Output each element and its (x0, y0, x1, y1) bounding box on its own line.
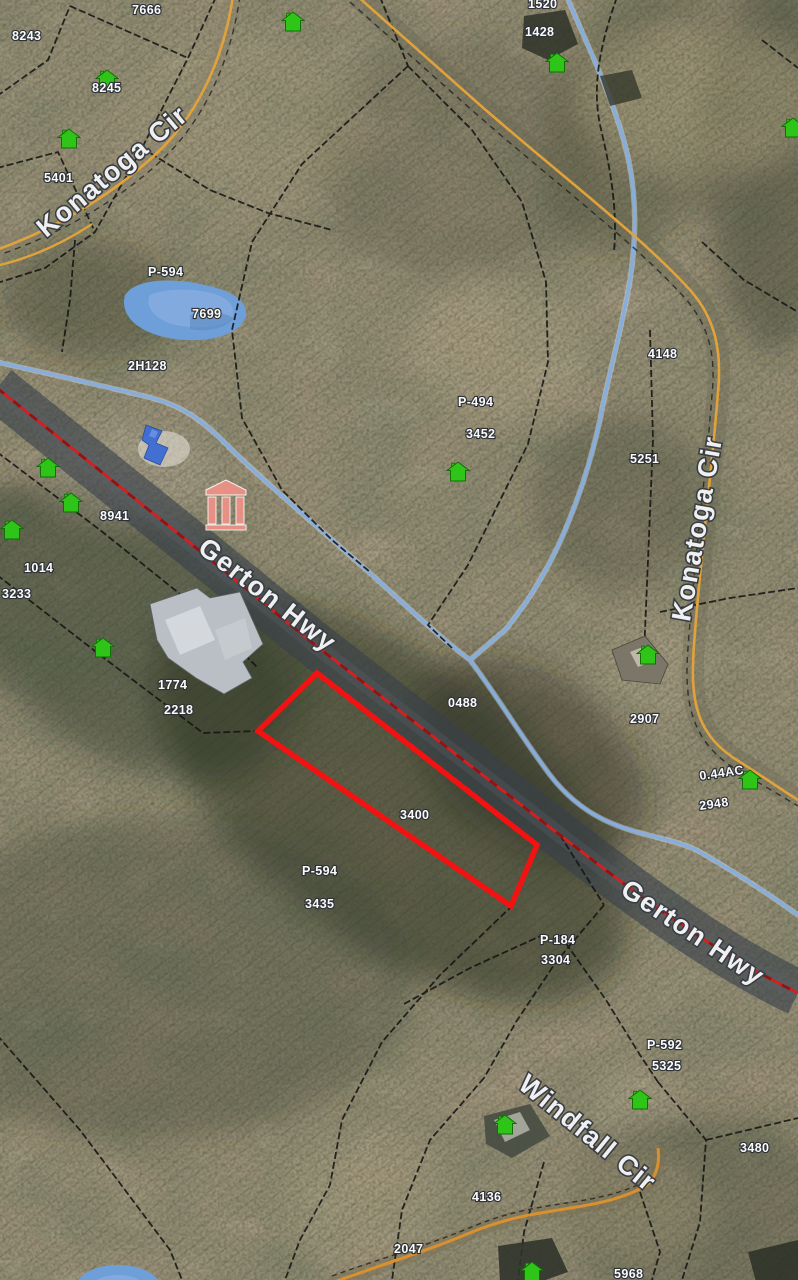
parcel-number: 2047 (394, 1242, 423, 1256)
parcel-number: 5968 (614, 1267, 643, 1280)
parcel-number: 2H128 (128, 359, 167, 373)
parcel-number: 0488 (448, 696, 477, 710)
parcel-number: 3480 (740, 1141, 769, 1155)
parcel-number: 5401 (44, 171, 73, 185)
parcel-number: 4136 (472, 1190, 501, 1204)
parcel-number: P-594 (302, 864, 337, 878)
ruins-columns-icon (206, 480, 246, 530)
parcel-number: 1428 (525, 25, 554, 39)
parcel-number: 8941 (100, 509, 129, 523)
parcel-number: 4148 (648, 347, 677, 361)
parcel-number: 2907 (630, 712, 659, 726)
parcel-number: 3304 (541, 953, 570, 967)
parcel-number: 2218 (164, 703, 193, 717)
parcel-number: P-594 (148, 265, 183, 279)
map-layers: 7666 8243 8245 5401 1520 1428 P-594 7699… (0, 0, 798, 1280)
parcel-number: 1520 (528, 0, 557, 11)
parcel-number: P-184 (540, 933, 575, 947)
parcel-number: 1014 (24, 561, 53, 575)
parcel-number: 3452 (466, 427, 495, 441)
parcel-number: 3435 (305, 897, 334, 911)
parcel-number: 7666 (132, 3, 161, 17)
parcel-number: P-592 (647, 1038, 682, 1052)
parcel-number: 8243 (12, 29, 41, 43)
parcel-number: 1774 (158, 678, 187, 692)
parcel-number: 3400 (400, 808, 429, 822)
parcel-number: 7699 (192, 307, 221, 321)
parcel-number: 8245 (92, 81, 121, 95)
parcel-number: 3233 (2, 587, 31, 601)
parcel-number: 5325 (652, 1059, 681, 1073)
parcel-map-canvas[interactable]: 7666 8243 8245 5401 1520 1428 P-594 7699… (0, 0, 798, 1280)
parcel-number: P-494 (458, 395, 493, 409)
parcel-number: 5251 (630, 452, 659, 466)
